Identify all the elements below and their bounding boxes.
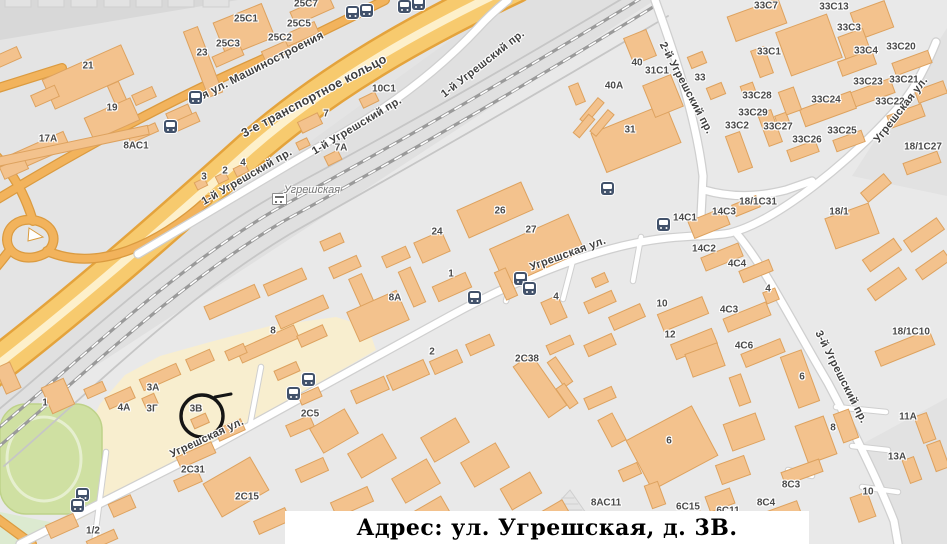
roof-structure <box>203 0 229 7</box>
address-text: Адрес: ул. Угрешская, д. 3В. <box>356 515 737 541</box>
bus-stop-icon[interactable] <box>412 0 425 10</box>
railway-station-icon[interactable] <box>272 193 287 205</box>
bus-stop-icon[interactable] <box>398 0 411 13</box>
roof-structure <box>168 0 194 7</box>
bus-stop-icon[interactable] <box>346 6 359 19</box>
bus-stop-icon[interactable] <box>287 387 300 400</box>
roof-structure <box>104 0 130 7</box>
bus-stop-icon[interactable] <box>468 291 481 304</box>
bus-stop-icon[interactable] <box>71 499 84 512</box>
roof-structure <box>71 0 97 7</box>
roof-structure <box>5 0 31 7</box>
roof-structure <box>136 0 162 7</box>
bus-stop-icon[interactable] <box>189 91 202 104</box>
bus-stop-icon[interactable] <box>601 182 614 195</box>
address-bar: Адрес: ул. Угрешская, д. 3В. <box>285 511 809 544</box>
roof-structure <box>38 0 64 7</box>
bus-stop-icon[interactable] <box>302 373 315 386</box>
map-canvas[interactable] <box>0 0 947 544</box>
map-view: 211917А8АС12325С325С125С225С525С710С177А… <box>0 0 947 544</box>
bus-stop-icon[interactable] <box>523 282 536 295</box>
bus-stop-icon[interactable] <box>657 218 670 231</box>
bus-stop-icon[interactable] <box>360 4 373 17</box>
bus-stop-icon[interactable] <box>164 120 177 133</box>
